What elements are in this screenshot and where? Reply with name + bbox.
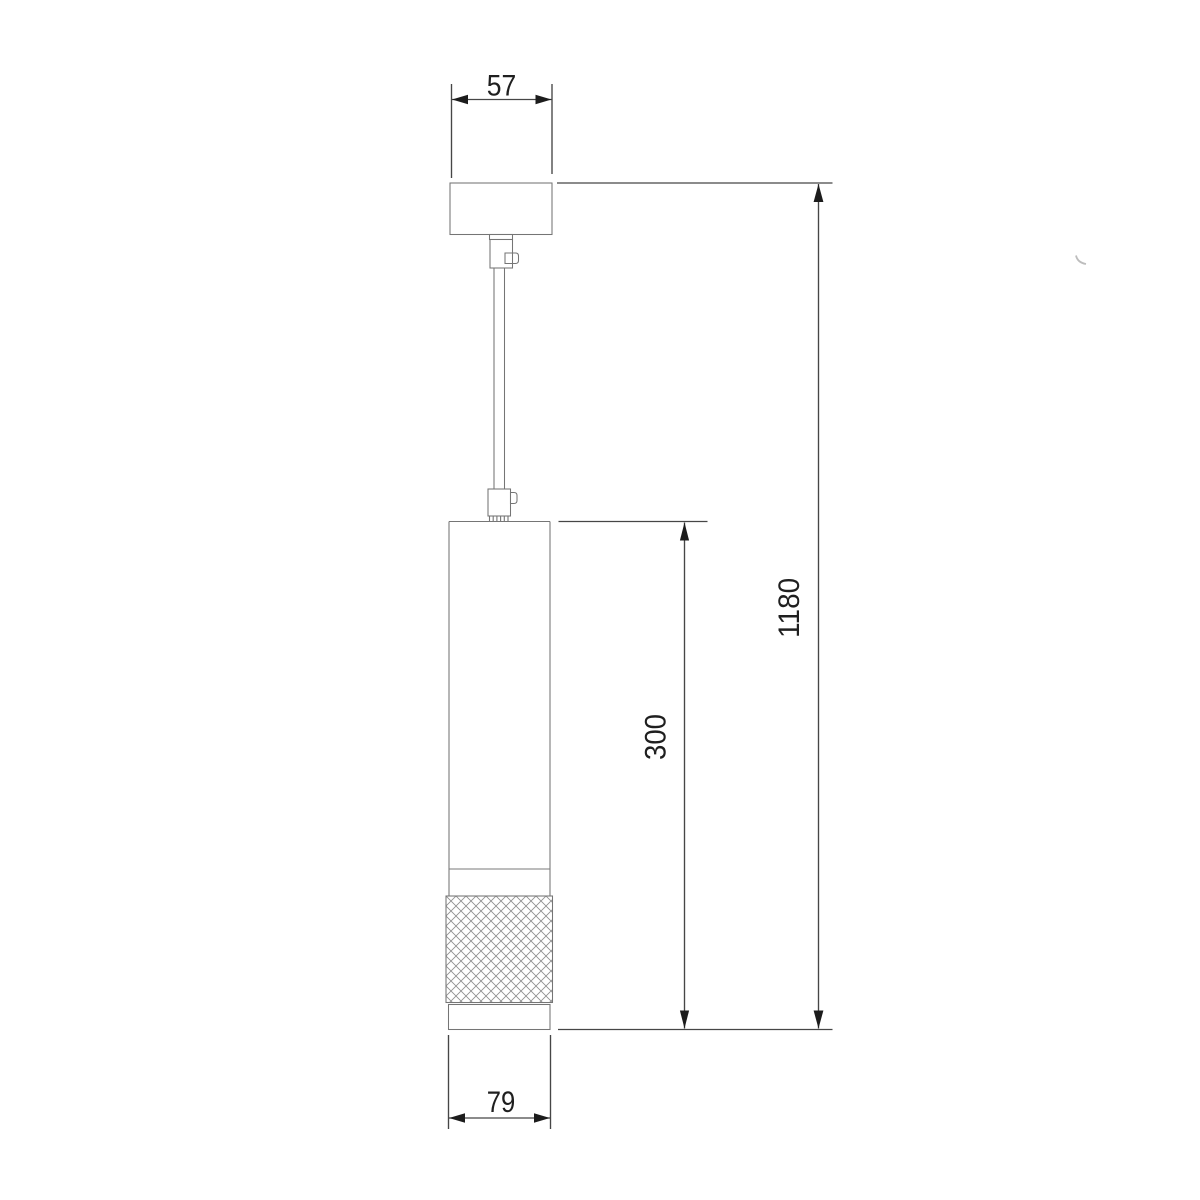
svg-text:57: 57 [487, 69, 517, 102]
svg-text:1180: 1180 [773, 578, 806, 638]
svg-text:79: 79 [487, 1086, 516, 1119]
svg-text:300: 300 [640, 714, 673, 760]
